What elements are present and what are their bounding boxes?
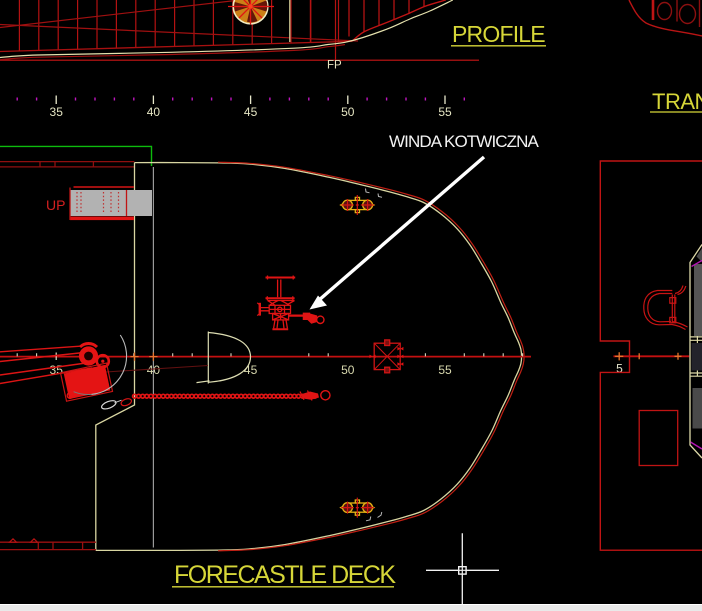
svg-text:35: 35 — [50, 105, 64, 119]
svg-text:UP: UP — [46, 197, 65, 213]
svg-text:5: 5 — [616, 362, 623, 376]
svg-text:50: 50 — [341, 105, 355, 119]
svg-text:55: 55 — [438, 105, 452, 119]
svg-text:55: 55 — [438, 363, 452, 377]
svg-text:45: 45 — [244, 363, 258, 377]
svg-text:FORECASTLE DECK: FORECASTLE DECK — [174, 561, 396, 589]
svg-text:FP: FP — [327, 60, 342, 72]
svg-text:PROFILE: PROFILE — [452, 21, 545, 47]
svg-text:40: 40 — [147, 363, 161, 377]
svg-text:40: 40 — [147, 105, 161, 119]
svg-text:WINDA KOTWICZNA: WINDA KOTWICZNA — [389, 132, 539, 151]
svg-text:50: 50 — [341, 363, 355, 377]
svg-text:TRAN: TRAN — [652, 89, 702, 114]
svg-text:45: 45 — [244, 105, 258, 119]
